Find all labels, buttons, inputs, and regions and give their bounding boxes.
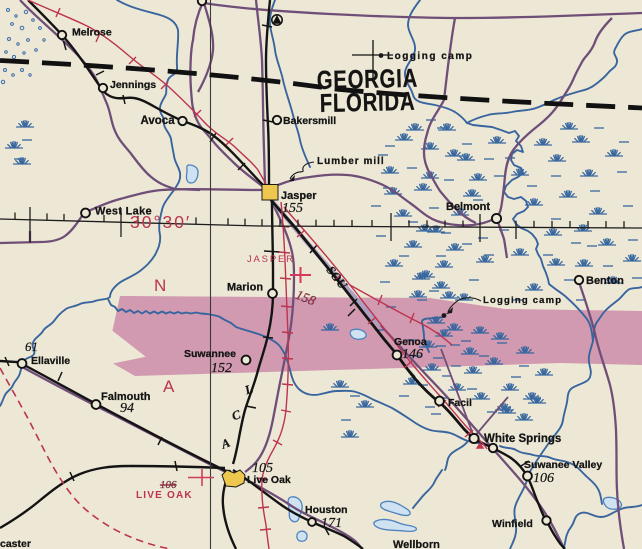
- svg-text:Wellborn: Wellborn: [393, 539, 440, 549]
- svg-text:Avoca: Avoca: [141, 115, 176, 127]
- svg-text:Houston: Houston: [305, 504, 348, 516]
- svg-text:94: 94: [120, 401, 134, 416]
- svg-text:N: N: [154, 276, 166, 295]
- svg-text:105: 105: [252, 461, 273, 476]
- svg-text:Suwanee Valley: Suwanee Valley: [524, 459, 602, 471]
- svg-text:152: 152: [211, 361, 232, 376]
- svg-text:caster: caster: [0, 538, 31, 549]
- svg-text:Belmont: Belmont: [446, 201, 490, 213]
- svg-text:Bakersmill: Bakersmill: [283, 115, 336, 127]
- svg-text:Jennings: Jennings: [110, 79, 156, 91]
- svg-text:Logging camp: Logging camp: [483, 295, 562, 306]
- svg-text:155: 155: [282, 201, 303, 216]
- svg-text:106: 106: [533, 471, 554, 486]
- svg-text:Facil: Facil: [448, 397, 472, 409]
- svg-text:Ellaville: Ellaville: [31, 355, 70, 367]
- svg-text:30°30′: 30°30′: [130, 212, 191, 232]
- svg-text:A: A: [163, 377, 175, 396]
- svg-text:White Springs: White Springs: [484, 433, 561, 445]
- svg-text:FLORIDA: FLORIDA: [319, 86, 415, 117]
- svg-text:LIVE OAK: LIVE OAK: [136, 490, 193, 501]
- svg-text:146: 146: [402, 347, 423, 362]
- svg-text:106: 106: [160, 479, 177, 491]
- svg-text:Benton: Benton: [586, 275, 624, 287]
- svg-text:61: 61: [25, 339, 38, 354]
- svg-text:JASPER: JASPER: [247, 254, 295, 265]
- svg-text:Marion: Marion: [227, 282, 263, 294]
- svg-text:Suwannee: Suwannee: [184, 348, 236, 360]
- svg-text:Winfield: Winfield: [492, 518, 533, 530]
- svg-text:Logging camp: Logging camp: [387, 51, 473, 62]
- svg-text:Lumber mill: Lumber mill: [317, 156, 385, 167]
- svg-text:Melrose: Melrose: [72, 27, 112, 39]
- svg-text:171: 171: [321, 516, 342, 531]
